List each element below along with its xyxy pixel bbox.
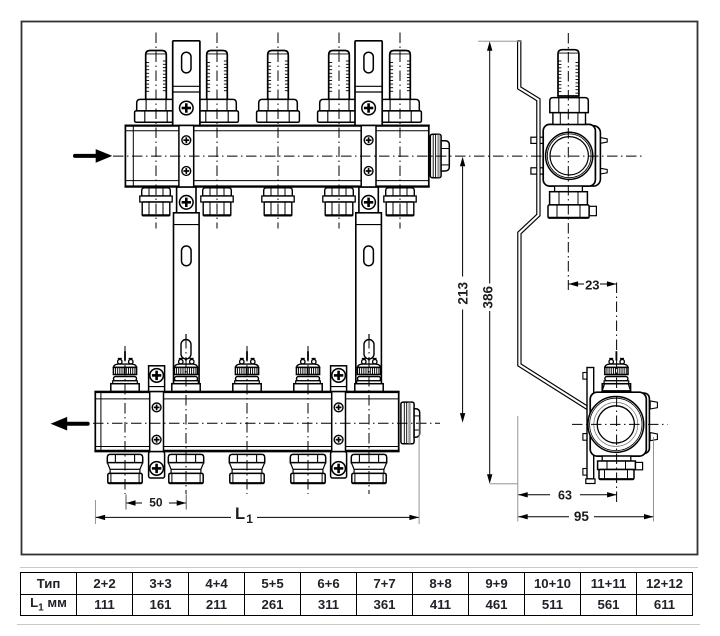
- svg-text:95: 95: [574, 509, 590, 524]
- svg-text:23: 23: [585, 277, 599, 292]
- svg-text:50: 50: [149, 496, 163, 510]
- svg-text:L: L: [235, 505, 245, 523]
- svg-text:386: 386: [481, 286, 496, 309]
- svg-text:63: 63: [558, 489, 572, 503]
- svg-text:213: 213: [456, 282, 471, 305]
- svg-text:1: 1: [246, 512, 253, 526]
